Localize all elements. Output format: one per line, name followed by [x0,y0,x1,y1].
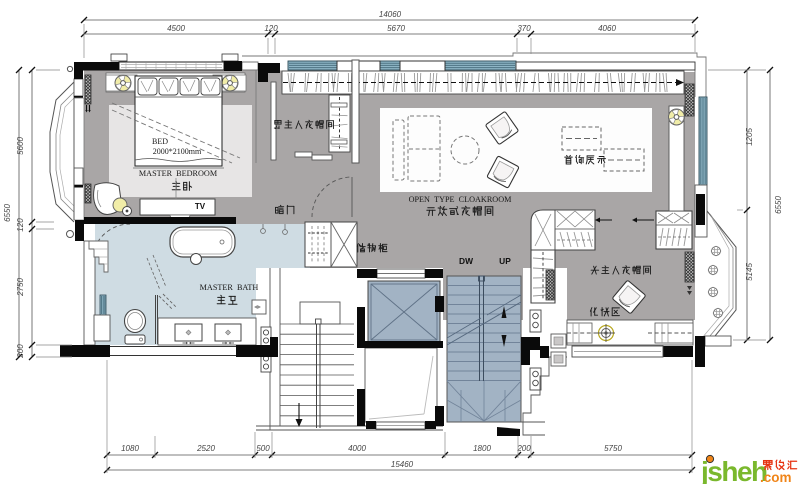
svg-text:jsheh: jsheh [700,456,767,484]
svg-text:2750: 2750 [16,278,25,297]
svg-text:120: 120 [264,24,278,33]
svg-text:4000: 4000 [348,444,366,453]
svg-text:5145: 5145 [745,263,754,281]
svg-text:5750: 5750 [604,444,622,453]
svg-text:1800: 1800 [473,444,491,453]
svg-text:200: 200 [516,444,531,453]
svg-text:500: 500 [256,444,270,453]
svg-text:5670: 5670 [387,24,405,33]
svg-text:MASTER BEDROOM: MASTER BEDROOM [139,169,218,178]
svg-text:200: 200 [16,344,25,359]
svg-text:.com: .com [760,470,792,484]
svg-text:6550: 6550 [3,204,12,222]
svg-text:15460: 15460 [391,460,414,469]
svg-text:UP: UP [499,256,511,266]
svg-text:4060: 4060 [598,24,616,33]
svg-text:TV: TV [195,202,206,211]
svg-text:1205: 1205 [745,128,754,146]
svg-text:2520: 2520 [196,444,215,453]
svg-text:6550: 6550 [774,196,783,214]
svg-text:5600: 5600 [16,137,25,155]
svg-text:MASTER BATH: MASTER BATH [200,283,259,292]
svg-text:370: 370 [517,24,531,33]
svg-text:OPEN TYPE CLOAKROOM: OPEN TYPE CLOAKROOM [409,195,513,204]
svg-text:BED: BED [152,137,168,146]
svg-text:DW: DW [459,256,473,266]
svg-text:1080: 1080 [121,444,139,453]
svg-text:120: 120 [16,218,25,232]
svg-text:14060: 14060 [379,10,402,19]
svg-text:4500: 4500 [167,24,185,33]
svg-text:2000*2100mm: 2000*2100mm [153,147,202,156]
